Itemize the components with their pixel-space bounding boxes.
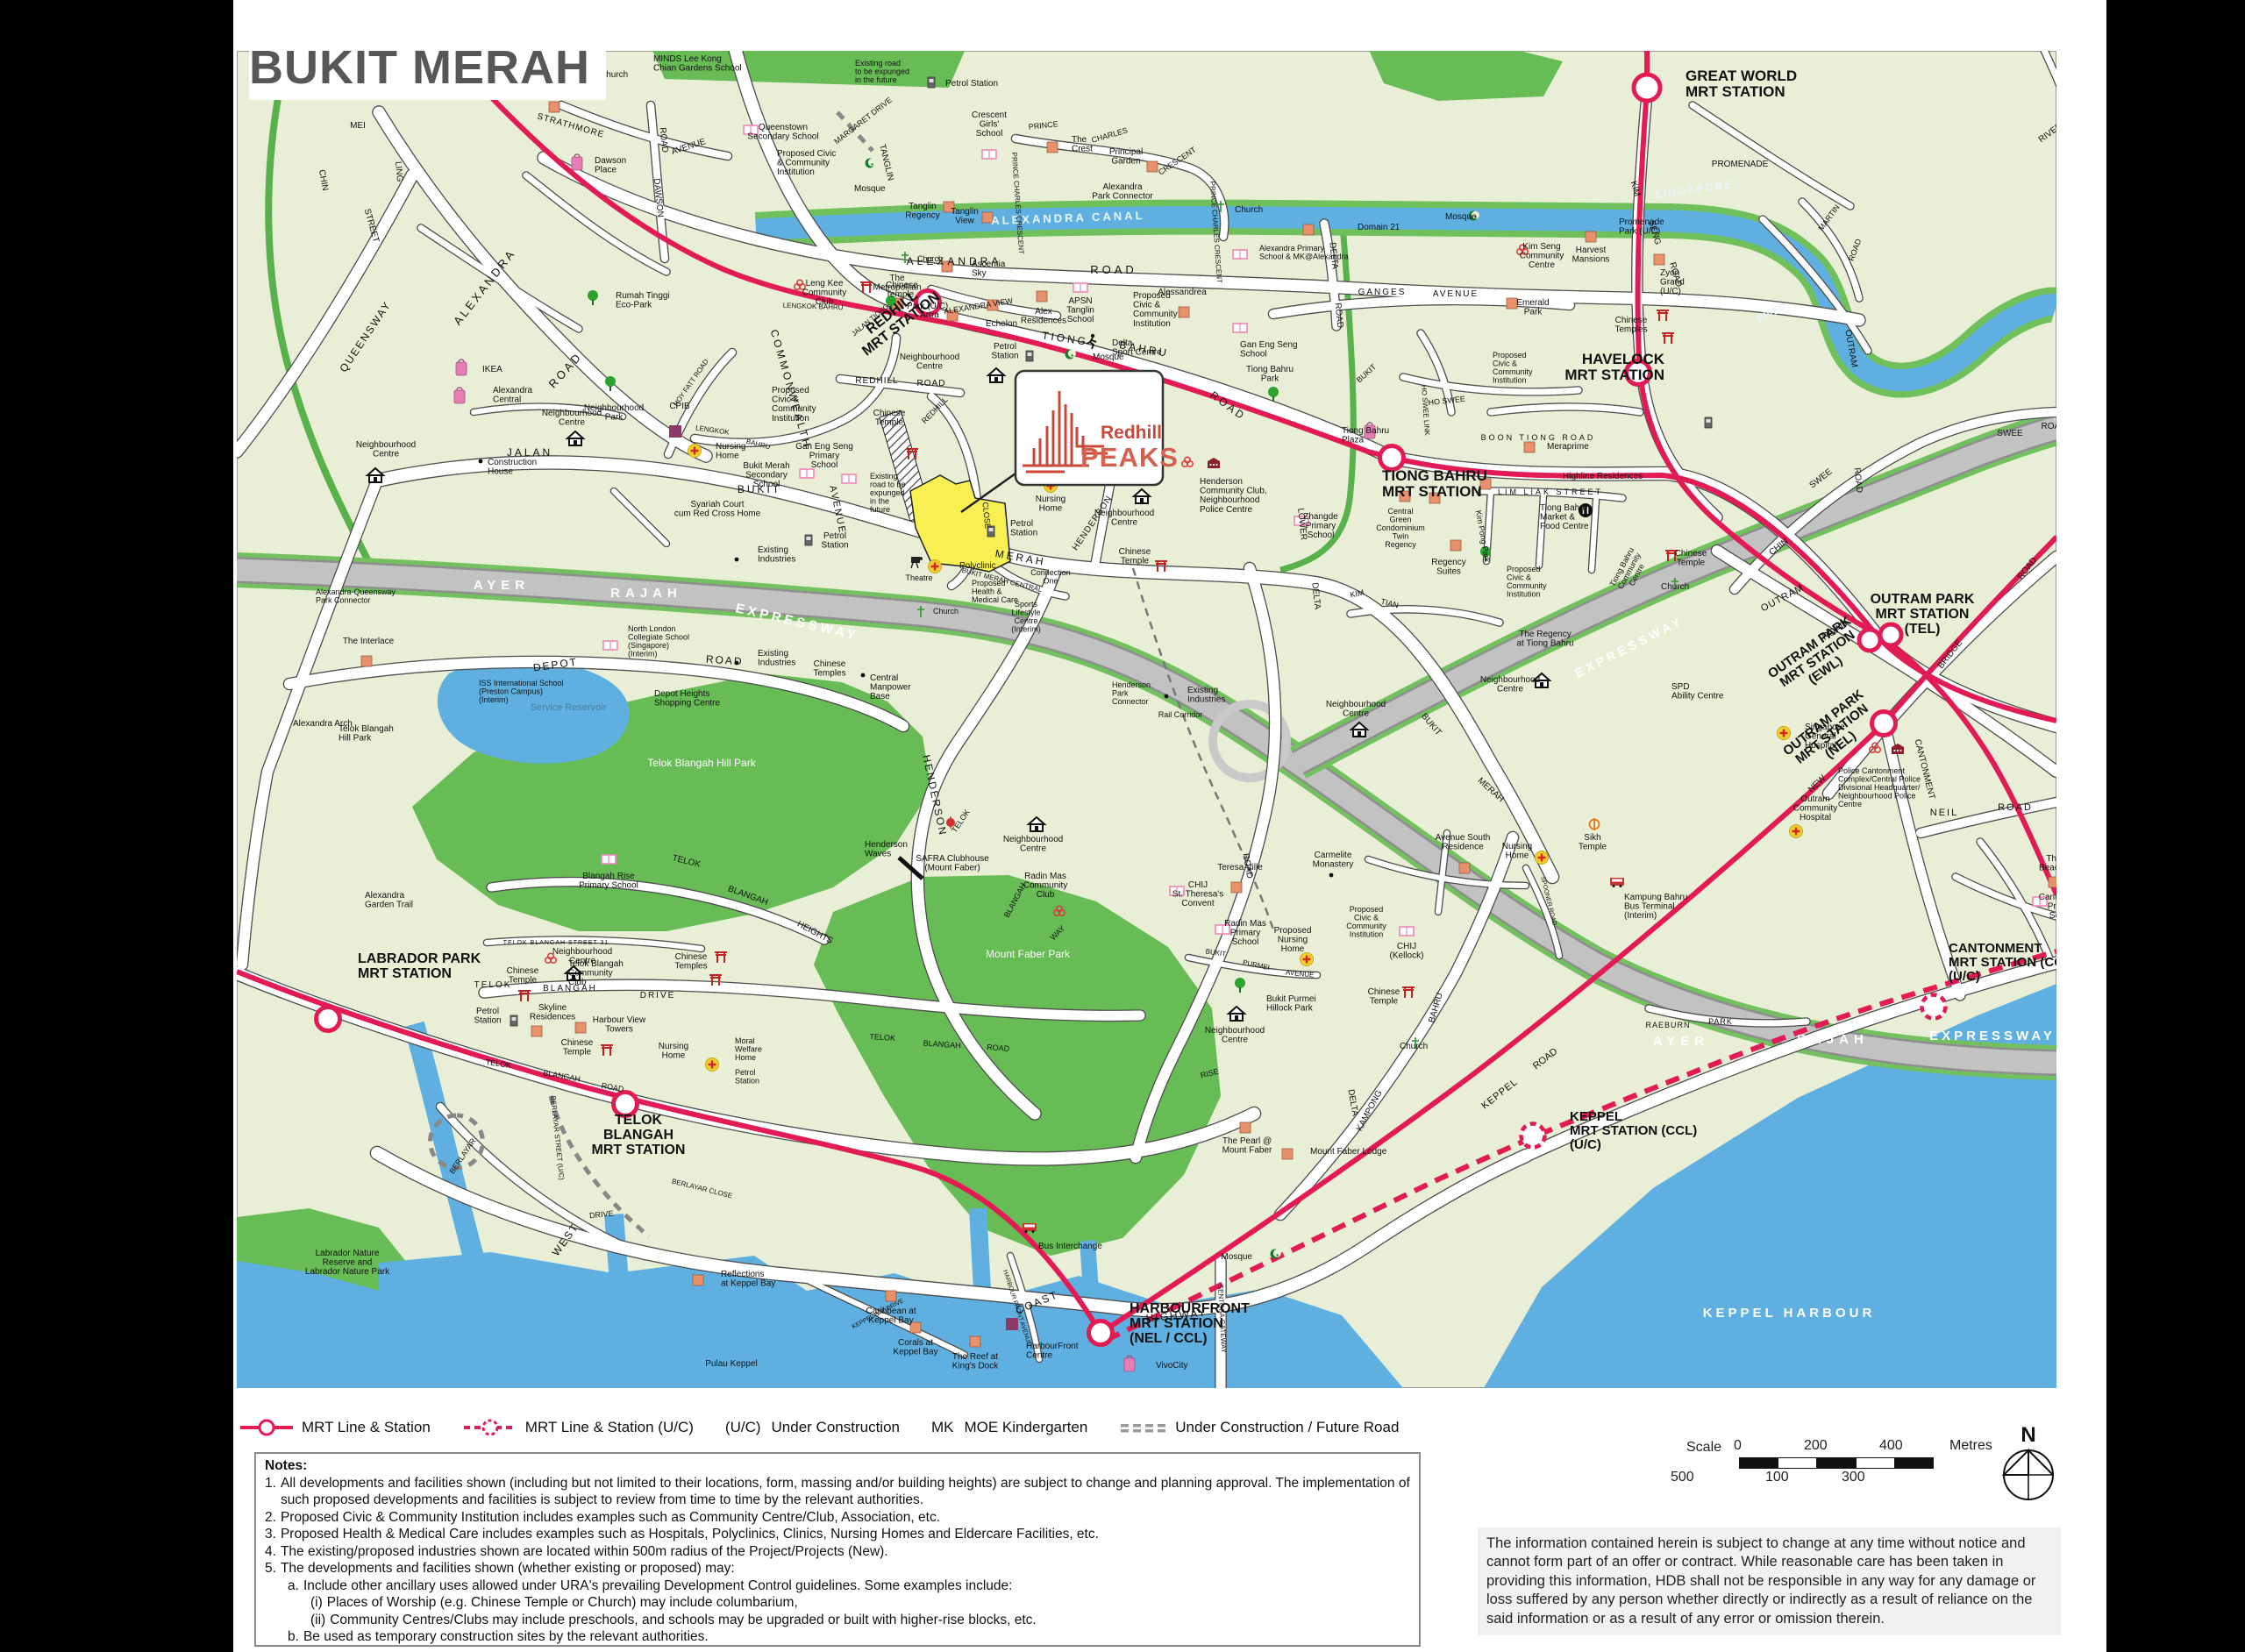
svg-text:Rail Corridor: Rail Corridor	[1158, 710, 1203, 719]
map-label: ChineseTemple	[886, 281, 918, 300]
svg-text:SAFRA Clubhouse(Mount Faber): SAFRA Clubhouse(Mount Faber)	[916, 854, 989, 873]
map-label: Blangah RisePrimary School	[579, 872, 638, 891]
svg-text:RAJAH: RAJAH	[610, 586, 682, 601]
svg-text:The Reef atKing's Dock: The Reef atKing's Dock	[952, 1352, 999, 1371]
map-label: ChineseTemples	[1614, 316, 1647, 335]
medcross-icon	[1790, 825, 1803, 838]
map-label: Meraprime	[1547, 442, 1589, 452]
map-label: Pulau Keppel	[705, 1359, 758, 1369]
map-label: Church	[1400, 1042, 1428, 1051]
legend-item: MRT Line & Station	[239, 1417, 431, 1438]
svg-text:PROMENADE: PROMENADE	[1712, 160, 1769, 169]
sq-icon	[693, 1275, 703, 1285]
svg-text:PrincipalGarden: PrincipalGarden	[1109, 147, 1143, 167]
note-item: (i)Places of Worship (e.g. Chinese Templ…	[265, 1594, 1410, 1612]
svg-text:GREAT WORLDMRT STATION: GREAT WORLDMRT STATION	[1686, 68, 1797, 100]
map-label: EXPRESSWAY	[1929, 1029, 2056, 1043]
svg-text:AVENUE: AVENUE	[1433, 289, 1479, 299]
legend-item: MKMOE Kindergarten	[931, 1419, 1087, 1436]
map-label: ChineseTemple	[1119, 547, 1151, 566]
scale-500: 500	[1671, 1470, 1694, 1485]
svg-text:RAEBURN: RAEBURN	[1645, 1021, 1690, 1029]
dot-icon	[735, 558, 739, 562]
map-label: CPIB	[669, 402, 690, 411]
mrt-station-marker	[1522, 1124, 1545, 1148]
map-label: The Reef atKing's Dock	[952, 1352, 999, 1371]
map-label: Mount Faber Park	[986, 948, 1071, 960]
map-label: RAJAH	[1797, 1032, 1869, 1047]
svg-text:ProposedCivic &CommunityInstit: ProposedCivic &CommunityInstitution	[1346, 905, 1386, 939]
map-label: PetrolStation	[821, 531, 848, 551]
dot-icon	[479, 459, 483, 464]
future-road-icon	[1119, 1417, 1168, 1438]
map-label: JALAN	[507, 446, 552, 459]
map-label: REDHILL	[855, 376, 898, 386]
mrt-station-marker	[1880, 624, 1901, 645]
svg-text:TIONG BAHRUMRT STATION: TIONG BAHRUMRT STATION	[1382, 467, 1487, 500]
map-label: Church	[1661, 582, 1689, 592]
svg-text:ROAD: ROAD	[1998, 802, 2033, 813]
mrt-station-marker	[1380, 446, 1404, 470]
svg-text:TELOK: TELOK	[474, 980, 512, 990]
scale-400: 400	[1879, 1438, 1903, 1454]
svg-text:NEIL: NEIL	[1930, 808, 1958, 818]
mrt-line-uc-icon	[462, 1417, 518, 1438]
svg-text:The Pearl @Mount Faber: The Pearl @Mount Faber	[1222, 1136, 1272, 1156]
svg-text:HarvestMansions: HarvestMansions	[1572, 246, 1610, 265]
svg-text:ChineseTemples: ChineseTemples	[813, 659, 845, 679]
legend-item: MRT Line & Station (U/C)	[462, 1417, 694, 1438]
svg-text:LING: LING	[393, 161, 404, 182]
notes-box: Notes: 1.All developments and facilities…	[254, 1452, 1421, 1647]
map-label: SportsLifestyleCentre(Interim)	[1011, 600, 1041, 634]
map-label: IKEA	[482, 365, 502, 374]
book-icon	[1233, 324, 1247, 332]
map-label: Mosque	[1221, 1252, 1252, 1262]
svg-text:Mosque: Mosque	[854, 184, 886, 194]
legend-prefix: MK	[931, 1419, 954, 1436]
svg-text:Church: Church	[1661, 582, 1689, 592]
book-icon	[603, 641, 617, 650]
map-label: GANGES	[1358, 288, 1407, 297]
svg-text:Alessandrea: Alessandrea	[1158, 288, 1207, 297]
map-label: Mosque	[1093, 352, 1124, 362]
map-label: AYER	[474, 578, 530, 593]
map-label: ROAD	[917, 379, 946, 388]
map-label: PROMENADE	[1712, 160, 1769, 169]
svg-text:KEPPEL HARBOUR: KEPPEL HARBOUR	[1703, 1306, 1876, 1321]
map-label: PromenadePark (U/C)	[1619, 217, 1664, 237]
svg-text:ROAD: ROAD	[987, 1043, 1010, 1053]
mall-icon	[1124, 1356, 1135, 1371]
map-label: Petrol Station	[945, 79, 998, 89]
svg-text:TanglinRegency: TanglinRegency	[905, 202, 939, 221]
svg-text:Church: Church	[933, 607, 959, 616]
map-label: TIONG BAHRUMRT STATION	[1382, 467, 1487, 500]
svg-text:Teresa Ville: Teresa Ville	[1217, 863, 1263, 872]
svg-text:Mosque: Mosque	[1445, 212, 1477, 222]
sq-icon	[531, 1026, 542, 1036]
svg-text:GANGES: GANGES	[1358, 288, 1407, 297]
medcross-icon	[929, 560, 942, 573]
svg-text:Church: Church	[1400, 1042, 1428, 1051]
svg-text:Meraprime: Meraprime	[1547, 442, 1589, 452]
note-item: 6.The future land use for former school …	[265, 1646, 1410, 1647]
map-label: TELOK BLANGAH STREET 31	[503, 940, 609, 946]
mrt-station-marker	[1634, 75, 1660, 101]
north-label: N	[2020, 1423, 2035, 1447]
svg-text:PetrolStation: PetrolStation	[991, 342, 1018, 361]
svg-text:PromenadePark (U/C): PromenadePark (U/C)	[1619, 217, 1664, 237]
pump-icon	[1026, 351, 1033, 361]
map-label: LIM LIAK STREET	[1498, 488, 1603, 496]
map-label: ChineseTemple	[1675, 549, 1707, 568]
map-label: PetrolStation	[991, 342, 1018, 361]
map-label: NursingHome	[1502, 842, 1532, 861]
map-label: The Interlace	[343, 637, 395, 646]
map-label: NursingHome	[1036, 495, 1065, 514]
map-label: Park (U/C)	[907, 302, 948, 311]
map-label: ROAD	[2042, 422, 2067, 431]
medcross-icon	[1778, 727, 1791, 740]
svg-text:Bukit PurmeiHillock Park: Bukit PurmeiHillock Park	[1266, 994, 1316, 1014]
scale-0: 0	[1734, 1438, 1742, 1454]
medcross-icon	[706, 1058, 719, 1072]
map-label: ROAD	[1090, 263, 1137, 276]
map-label: RegencySuites	[1431, 558, 1465, 577]
map-label: AYER	[1653, 1034, 1709, 1049]
sq-icon	[1524, 442, 1535, 452]
scale-label: Scale	[1686, 1440, 1721, 1456]
sq-icon	[1450, 540, 1461, 551]
page: BUKIT MERAH QUEENSTOWNMRT STATIONGREAT W…	[0, 0, 2245, 1652]
svg-text:TELOK: TELOK	[869, 1032, 895, 1043]
map-label: VivoCity	[1156, 1361, 1188, 1371]
legend-label: MRT Line & Station	[302, 1419, 431, 1436]
disclaimer-text: The information contained herein is subj…	[1478, 1527, 2061, 1635]
svg-text:Mosque: Mosque	[1093, 352, 1124, 362]
map-label: ROAD	[987, 1043, 1010, 1053]
map-label: TanglinRegency	[905, 202, 939, 221]
map-label: ROAD	[1998, 802, 2033, 813]
pump-icon	[805, 535, 812, 545]
svg-text:SportsLifestyleCentre(Interim): SportsLifestyleCentre(Interim)	[1011, 600, 1041, 634]
map-label: PetrolStation	[474, 1007, 501, 1026]
map-label: Mount Faber Lodge	[1310, 1147, 1387, 1157]
sq-icon	[1654, 254, 1664, 265]
book-icon	[982, 150, 996, 159]
note-item: 4.The existing/proposed industries shown…	[265, 1543, 1410, 1561]
map-label: APSNTanglinSchool	[1066, 296, 1094, 324]
map-label: The Regencyat Tiong Bahru	[1516, 630, 1573, 649]
svg-text:Telok Blangah Hill Park: Telok Blangah Hill Park	[647, 757, 756, 769]
svg-text:CarmeliteMonastery: CarmeliteMonastery	[1313, 851, 1354, 870]
map-label: CarmeliteMonastery	[1313, 851, 1354, 870]
scale-bar-segments	[1739, 1457, 1934, 1469]
scale-100: 100	[1765, 1470, 1789, 1485]
svg-text:LIM LIAK STREET: LIM LIAK STREET	[1498, 488, 1603, 496]
map-label: ROAD	[706, 653, 745, 668]
mall-icon	[572, 154, 582, 170]
map-label: MEI	[350, 121, 366, 131]
map-label: TELOK	[474, 980, 512, 990]
sq-icon	[549, 102, 559, 112]
map-label: ChineseTemple	[561, 1038, 594, 1057]
legend-item: Under Construction / Future Road	[1119, 1417, 1399, 1438]
mrt-station-marker	[1872, 712, 1896, 736]
svg-text:Domain 21: Domain 21	[1358, 223, 1400, 232]
svg-text:Echelon: Echelon	[986, 319, 1017, 329]
note-item: 1.All developments and facilities shown …	[265, 1475, 1410, 1509]
scale-300: 300	[1842, 1470, 1865, 1485]
scale-unit: Metres	[1949, 1438, 1992, 1454]
svg-text:ChineseTemple: ChineseTemple	[1368, 987, 1400, 1007]
svg-text:ROAD: ROAD	[1090, 263, 1137, 276]
medcross-icon	[688, 445, 702, 458]
map-label: ChineseTemple	[873, 409, 906, 428]
map-label: Alessandrea	[1158, 288, 1207, 297]
legend-label: MOE Kindergarten	[964, 1419, 1087, 1436]
svg-text:ChineseTemple: ChineseTemple	[561, 1038, 594, 1057]
map-label: Service Reservoir	[531, 702, 607, 713]
redhill-peaks-logo: RedhillPEAKS	[1016, 371, 1179, 485]
svg-text:Polyclinic: Polyclinic	[959, 561, 996, 571]
svg-text:ZhangdePrimarySchool: ZhangdePrimarySchool	[1303, 512, 1338, 540]
svg-text:JALAN: JALAN	[507, 446, 552, 459]
map-label: ChineseTemples	[813, 659, 845, 679]
svg-text:Blangah RisePrimary School: Blangah RisePrimary School	[579, 872, 638, 891]
svg-text:ChineseTemples: ChineseTemples	[674, 952, 707, 972]
note-item: (ii)Community Centres/Clubs may include …	[265, 1612, 1410, 1629]
mrt-station-marker	[1859, 630, 1880, 651]
map-label: Teresa Ville	[1217, 863, 1263, 872]
map-label: Bukit PurmeiHillock Park	[1266, 994, 1316, 1014]
sq-icon	[2049, 877, 2059, 887]
notes-list: 1.All developments and facilities shown …	[265, 1475, 1410, 1647]
sq-icon	[1459, 863, 1470, 873]
sq-icon	[1147, 161, 1158, 172]
scale-bar: Scale 0 200 400 Metres 100 300 500	[1671, 1436, 2021, 1489]
map-label: Highline Residences	[1563, 472, 1643, 481]
sq-icon	[1231, 882, 1242, 893]
svg-text:RegencySuites: RegencySuites	[1431, 558, 1465, 577]
book-icon	[1073, 283, 1087, 292]
legend-prefix: (U/C)	[725, 1419, 761, 1436]
map-label: ChineseTemple	[1368, 987, 1400, 1007]
map-label: Avenue SouthResidence	[1436, 833, 1491, 852]
map-label: Telok Blangah Hill Park	[647, 757, 756, 769]
medcross-icon	[1301, 953, 1314, 966]
svg-text:NursingHome: NursingHome	[1036, 495, 1065, 514]
note-item: a.Include other ancillary uses allowed u…	[265, 1577, 1410, 1595]
map-label: Artra	[920, 310, 939, 320]
map-label: ZhangdePrimarySchool	[1303, 512, 1338, 540]
north-compass: N	[1989, 1422, 2068, 1510]
svg-text:The Regencyat Tiong Bahru: The Regencyat Tiong Bahru	[1516, 630, 1573, 649]
dot-icon	[861, 673, 866, 678]
svg-text:AYER: AYER	[474, 578, 530, 593]
svg-text:Theatre: Theatre	[905, 573, 932, 582]
legend-label: MRT Line & Station (U/C)	[525, 1419, 694, 1436]
sq-icon	[1240, 1122, 1251, 1133]
book-icon	[1233, 250, 1247, 259]
map-label: Theatre	[905, 573, 932, 582]
mall-icon	[456, 360, 467, 375]
svg-text:AYER: AYER	[1653, 1034, 1709, 1049]
pump-icon	[928, 77, 935, 88]
svg-text:CPIB: CPIB	[669, 402, 690, 411]
svg-text:ROAD: ROAD	[917, 379, 946, 388]
map-label: Bus Interchange	[1038, 1242, 1102, 1251]
map-label: RAEBURN	[1645, 1021, 1690, 1029]
svg-text:Caribbean atKeppel Bay: Caribbean atKeppel Bay	[866, 1307, 916, 1326]
svg-text:EXPRESSWAY: EXPRESSWAY	[1929, 1029, 2056, 1043]
note-item: 5.The developments and facilities shown …	[265, 1560, 1410, 1577]
svg-text:NursingHome: NursingHome	[1502, 842, 1532, 861]
sq-icon	[1282, 1149, 1293, 1159]
map-label: ChineseTemples	[674, 952, 707, 972]
svg-text:NursingHome: NursingHome	[659, 1042, 688, 1061]
note-item: 3.Proposed Health & Medical Care include…	[265, 1526, 1410, 1543]
map-label: Polyclinic	[959, 561, 996, 571]
map-label: GREAT WORLDMRT STATION	[1686, 68, 1797, 100]
bukit-merah-map: QUEENSTOWNMRT STATIONGREAT WORLDMRT STAT…	[0, 0, 2245, 1652]
page-title: BUKIT MERAH	[249, 40, 606, 100]
svg-text:Corals atKeppel Bay: Corals atKeppel Bay	[893, 1338, 937, 1357]
sq-icon	[1179, 307, 1189, 317]
svg-text:PetrolStation: PetrolStation	[821, 531, 848, 551]
book-icon	[800, 469, 814, 478]
svg-text:IKEA: IKEA	[482, 365, 502, 374]
map-label: Mosque	[1445, 212, 1477, 222]
sq-icon	[1586, 231, 1596, 242]
logo-name: Redhill	[1101, 423, 1162, 443]
sq-icon	[361, 656, 372, 666]
svg-text:APSNTanglinSchool: APSNTanglinSchool	[1066, 296, 1094, 324]
mrt-station-marker	[1922, 995, 1946, 1019]
map-label: PrincipalGarden	[1109, 147, 1143, 167]
svg-text:Petrol Station: Petrol Station	[945, 79, 998, 89]
svg-text:RAJAH: RAJAH	[1797, 1032, 1869, 1047]
map-label: RAJAH	[610, 586, 682, 601]
svg-text:ROAD: ROAD	[2042, 422, 2067, 431]
note-item: b.Be used as temporary construction site…	[265, 1628, 1410, 1646]
sq-icon	[575, 1022, 586, 1033]
map-label: Church	[1235, 205, 1263, 215]
svg-text:Park (U/C): Park (U/C)	[907, 302, 948, 311]
medcross-icon	[1536, 851, 1549, 865]
mrt-station-marker	[317, 1008, 340, 1031]
pump-icon	[510, 1015, 517, 1026]
book-icon	[602, 855, 616, 864]
svg-text:SWEE: SWEE	[1997, 429, 2023, 438]
map-label: TELOK	[869, 1032, 895, 1043]
svg-text:ChineseTemple: ChineseTemple	[1675, 549, 1707, 568]
map-label: SAFRA Clubhouse(Mount Faber)	[916, 854, 989, 873]
map-label: Corals atKeppel Bay	[893, 1338, 937, 1357]
map-label: HarvestMansions	[1572, 246, 1610, 265]
svg-text:PetrolStation: PetrolStation	[474, 1007, 501, 1026]
map-label: Rail Corridor	[1158, 710, 1203, 719]
map-label: NEIL	[1930, 808, 1958, 818]
book-icon	[1400, 927, 1414, 936]
svg-text:REDHILL: REDHILL	[855, 376, 898, 386]
map-label: BOON TIONG ROAD	[1481, 433, 1596, 442]
svg-text:Mosque: Mosque	[1221, 1252, 1252, 1262]
map-label: NursingHome	[659, 1042, 688, 1061]
map-label: DRIVE	[640, 991, 676, 1000]
map-label: Caribbean atKeppel Bay	[866, 1307, 916, 1326]
svg-text:Highline Residences: Highline Residences	[1563, 472, 1643, 481]
notes-heading: Notes:	[265, 1457, 1410, 1475]
svg-text:Mount Faber Park: Mount Faber Park	[986, 948, 1071, 960]
map-label: KEPPEL HARBOUR	[1703, 1306, 1876, 1321]
note-item: 2.Proposed Civic & Community Institution…	[265, 1509, 1410, 1527]
map-label: Church	[917, 254, 943, 263]
svg-text:ChineseTemple: ChineseTemple	[1119, 547, 1151, 566]
svg-text:ROAD: ROAD	[706, 653, 745, 668]
svg-text:Avenue SouthResidence: Avenue SouthResidence	[1436, 833, 1491, 852]
map-label: Mosque	[854, 184, 886, 194]
svg-text:DRIVE: DRIVE	[640, 991, 676, 1000]
purple-icon	[669, 425, 681, 438]
svg-text:Pulau Keppel: Pulau Keppel	[705, 1359, 758, 1369]
map-label: Domain 21	[1358, 223, 1400, 232]
sq-icon	[1507, 298, 1517, 309]
pump-icon	[1705, 417, 1712, 428]
map-label: LING	[393, 161, 404, 182]
map-legend: MRT Line & StationMRT Line & Station (U/…	[239, 1410, 1422, 1445]
svg-text:ChineseTemple: ChineseTemple	[873, 409, 906, 428]
map-label: AVENUE	[1433, 289, 1479, 299]
svg-text:VivoCity: VivoCity	[1156, 1361, 1188, 1371]
mrt-line-icon	[239, 1417, 295, 1438]
svg-text:BOON TIONG ROAD: BOON TIONG ROAD	[1481, 433, 1596, 442]
svg-text:Church: Church	[1235, 205, 1263, 215]
map-label: The Pearl @Mount Faber	[1222, 1136, 1272, 1156]
svg-text:ChineseTemple: ChineseTemple	[507, 966, 539, 986]
sq-icon	[1047, 142, 1058, 153]
logo-sub: PEAKS	[1080, 442, 1179, 473]
svg-text:TELOK BLANGAH STREET 31: TELOK BLANGAH STREET 31	[503, 940, 609, 946]
svg-text:ChineseTemples: ChineseTemples	[1614, 316, 1647, 335]
svg-text:Mount Faber Lodge: Mount Faber Lodge	[1310, 1147, 1387, 1157]
map-label: SWEE	[1997, 429, 2023, 438]
legend-label: Under Construction	[772, 1419, 900, 1436]
svg-text:MEI: MEI	[350, 121, 366, 131]
svg-text:PARK: PARK	[1708, 1017, 1733, 1026]
sq-icon	[1303, 224, 1314, 235]
sq-icon	[970, 1336, 980, 1347]
legend-label: Under Construction / Future Road	[1175, 1419, 1399, 1436]
mall-icon	[454, 388, 465, 403]
svg-text:Church: Church	[917, 254, 943, 263]
map-label: Church	[933, 607, 959, 616]
book-icon	[842, 474, 856, 483]
svg-text:Bus Interchange: Bus Interchange	[1038, 1242, 1102, 1251]
dot-icon	[1165, 694, 1169, 699]
map-label: PARK	[1708, 1017, 1733, 1026]
purple-icon	[1006, 1318, 1018, 1330]
svg-text:Artra: Artra	[920, 310, 939, 320]
map-label: ChineseTemple	[507, 966, 539, 986]
dot-icon	[1329, 873, 1334, 878]
sq-icon	[1037, 291, 1047, 302]
map-label: ProposedCivic &CommunityInstitution	[1346, 905, 1386, 939]
svg-text:Service Reservoir: Service Reservoir	[531, 702, 607, 713]
scale-200: 200	[1804, 1438, 1828, 1454]
map-label: Echelon	[986, 319, 1017, 329]
